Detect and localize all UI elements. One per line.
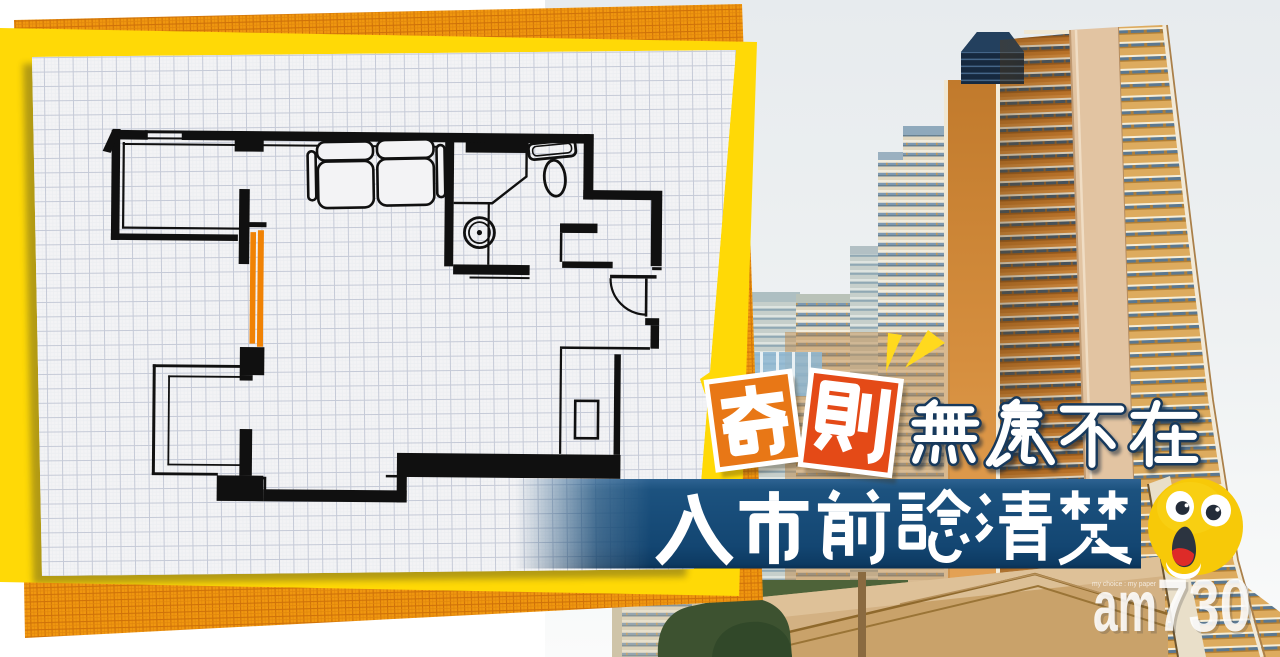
svg-text:am: am	[1093, 567, 1157, 647]
svg-text:730: 730	[1157, 564, 1251, 647]
